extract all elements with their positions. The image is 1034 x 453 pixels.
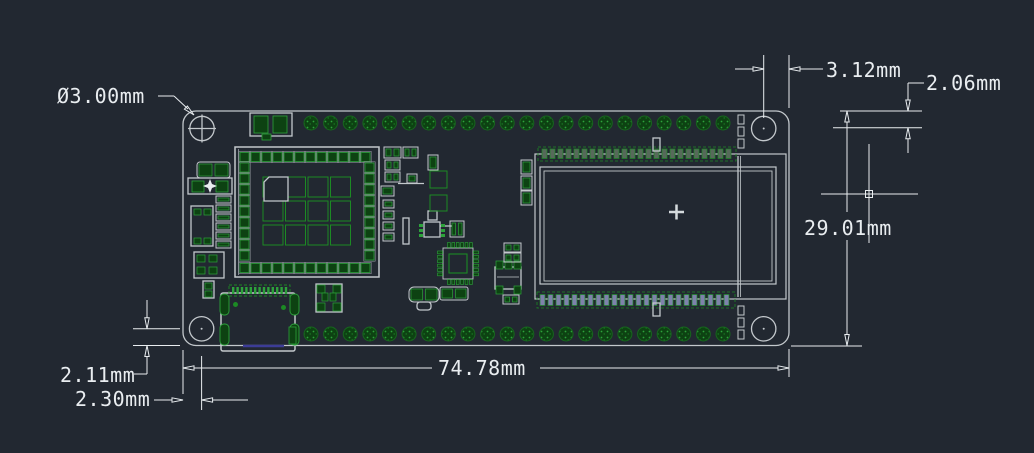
- mounting-hole-bottom-left: [189, 317, 213, 341]
- passive-pad: [459, 223, 463, 235]
- display-pad-top: [670, 149, 675, 159]
- mounting-hole-top-left: [188, 115, 216, 143]
- module-pad: [361, 153, 370, 162]
- usb-pin: [236, 287, 238, 294]
- passive-pad: [405, 149, 409, 156]
- passive-pad: [514, 245, 519, 250]
- module-pad: [284, 264, 293, 273]
- qfp-pin: [438, 264, 443, 267]
- display-module: [535, 147, 786, 308]
- qfp-pin: [474, 269, 479, 272]
- module-pad: [295, 264, 304, 273]
- crystal-footprint: [403, 218, 409, 244]
- display-pad-bottom: [692, 295, 697, 306]
- hole-side-marks: [738, 115, 744, 339]
- pin-pad: [618, 327, 632, 341]
- usb-pin: [276, 287, 278, 294]
- module-pad: [240, 229, 249, 238]
- usb-pin: [232, 287, 234, 294]
- ic-pin: [441, 234, 445, 237]
- display-pad-bottom: [588, 295, 593, 306]
- led-star-icon: [203, 179, 217, 193]
- qfp-pin: [470, 280, 473, 285]
- module-grid-pad: [308, 225, 328, 245]
- display-pad-top: [622, 149, 627, 159]
- dimensions-layer: Ø3.00mm 3.12mm 2.06mm 2: [57, 55, 1001, 411]
- display-pad-top: [630, 149, 635, 159]
- passive-pad: [412, 149, 416, 156]
- passive-pad: [394, 149, 399, 156]
- qfp-pin: [438, 260, 443, 263]
- small-component: [203, 281, 214, 298]
- pin-pad: [598, 327, 612, 341]
- passive-pad: [199, 164, 212, 176]
- module-pad: [240, 218, 249, 227]
- passive-pad: [394, 174, 398, 180]
- module-pad: [328, 153, 337, 162]
- module-pad: [365, 174, 374, 183]
- passive-pad: [506, 245, 511, 250]
- qfp-pin: [438, 273, 443, 276]
- module-pad: [273, 153, 282, 162]
- hole-side-mark: [738, 318, 744, 327]
- module-grid-pad: [308, 177, 328, 197]
- tactile-button-footprint: [495, 261, 521, 294]
- display-pad-bottom: [700, 295, 705, 306]
- module-pad: [240, 163, 249, 172]
- ic-pin: [419, 229, 423, 232]
- module-pad: [365, 251, 374, 260]
- module-pad: [350, 264, 359, 273]
- display-pad-bottom: [644, 295, 649, 306]
- qfp-pin: [465, 280, 468, 285]
- module-grid-pad: [286, 201, 306, 221]
- display-pad-top: [606, 149, 611, 159]
- pin-pad: [638, 327, 652, 341]
- passive-pad: [386, 149, 391, 156]
- power-ic-footprint: [194, 252, 224, 278]
- display-pad-bottom: [620, 295, 625, 306]
- display-pad-bottom: [660, 295, 665, 306]
- display-pad-top: [702, 149, 707, 159]
- pin-pad: [696, 116, 710, 130]
- usb-pin: [250, 287, 252, 294]
- display-pad-bottom: [724, 295, 729, 306]
- dimension-label-hole-diameter: Ø3.00mm: [57, 84, 145, 108]
- module-pad: [240, 240, 249, 249]
- qfp-pin: [448, 280, 451, 285]
- passive-pad: [426, 289, 438, 300]
- pin-pad: [618, 116, 632, 130]
- qfp-pin: [456, 243, 459, 248]
- module-pad: [365, 163, 374, 172]
- display-pad-bottom: [572, 295, 577, 306]
- dimension-label-top-edge-to-hole: 2.06mm: [926, 71, 1001, 95]
- display-pad-top: [558, 149, 563, 159]
- passive-pad: [218, 243, 229, 246]
- dimension-label-board-height: 29.01mm: [804, 216, 892, 240]
- display-pad-top: [582, 149, 587, 159]
- display-center-mark-icon: [669, 205, 684, 220]
- module-pad: [240, 153, 249, 162]
- display-pad-bottom: [708, 295, 713, 306]
- pin-pad: [657, 327, 671, 341]
- pin-pad: [579, 327, 593, 341]
- board-outline: [183, 111, 789, 346]
- display-pad-top: [710, 149, 715, 159]
- usb-pin: [272, 287, 274, 294]
- qfp-pin: [448, 243, 451, 248]
- pin-pad: [461, 327, 475, 341]
- pin-pad: [638, 116, 652, 130]
- module-pad: [365, 196, 374, 205]
- passive-pad: [452, 223, 456, 235]
- qfp-pin: [452, 280, 455, 285]
- display-pad-bottom: [636, 295, 641, 306]
- module-pad: [240, 196, 249, 205]
- display-pad-top: [614, 149, 619, 159]
- passive-pad: [218, 198, 229, 201]
- ic-pin: [419, 234, 423, 237]
- pin-pad: [363, 327, 377, 341]
- pin-pad: [363, 116, 377, 130]
- cad-viewport[interactable]: Ø3.00mm 3.12mm 2.06mm 2: [0, 0, 1034, 453]
- pin-pad: [343, 116, 357, 130]
- passive-pad: [513, 297, 518, 302]
- center-mark-icon: [188, 115, 216, 143]
- passive-pad: [383, 188, 392, 194]
- display-pad-top: [686, 149, 691, 159]
- pin-pad: [402, 327, 416, 341]
- module-pad: [365, 240, 374, 249]
- module-pad: [240, 264, 249, 273]
- pin-pad: [304, 116, 318, 130]
- usb-pin: [267, 287, 269, 294]
- usb-connector-footprint: [220, 285, 299, 351]
- pin-pad: [598, 116, 612, 130]
- display-pad-bottom: [556, 295, 561, 306]
- mounting-hole-bottom-right: [752, 317, 776, 341]
- pin-pad: [441, 327, 455, 341]
- display-pad-bottom: [684, 295, 689, 306]
- pin-pad: [382, 327, 396, 341]
- module-grid-pad: [263, 225, 283, 245]
- pin-pad: [539, 116, 553, 130]
- module-pad: [240, 174, 249, 183]
- pin-pad: [402, 116, 416, 130]
- passive-pad: [523, 193, 530, 203]
- pin-pad: [677, 116, 691, 130]
- mounting-hole-top-right: [752, 116, 776, 140]
- passive-pad: [394, 162, 398, 168]
- display-pad-top: [590, 149, 595, 159]
- module-pad: [328, 264, 337, 273]
- qfp-pin: [438, 255, 443, 258]
- rf-module-footprint: [235, 147, 379, 277]
- module-pad: [240, 185, 249, 194]
- pin-pad: [520, 327, 534, 341]
- passive-pad: [218, 234, 229, 237]
- regulator-ic-footprint: [191, 206, 213, 246]
- module-pad: [350, 153, 359, 162]
- pin-pad: [324, 116, 338, 130]
- qfp-pin: [474, 260, 479, 263]
- display-pad-bottom: [580, 295, 585, 306]
- hole-side-mark: [738, 139, 744, 148]
- button-tab: [417, 302, 431, 310]
- usb-pin: [263, 287, 265, 294]
- passive-pad: [430, 157, 436, 168]
- display-pad-bottom: [564, 295, 569, 306]
- qfp-pin: [465, 243, 468, 248]
- passive-pad: [218, 225, 229, 228]
- module-pad: [365, 229, 374, 238]
- usb-pin: [245, 287, 247, 294]
- display-pad-bottom: [716, 295, 721, 306]
- module-pad: [361, 264, 370, 273]
- passive-pad: [456, 289, 467, 298]
- display-pad-bottom: [604, 295, 609, 306]
- pin-pad: [696, 327, 710, 341]
- passive-pad: [411, 289, 423, 300]
- display-pad-bottom: [548, 295, 553, 306]
- display-pad-top: [550, 149, 555, 159]
- pin-pad: [324, 327, 338, 341]
- dimension-top-edge-to-hole: 2.06mm: [833, 71, 1001, 153]
- passive-pad: [385, 213, 392, 217]
- display-pad-bottom: [628, 295, 633, 306]
- pin-pad: [500, 327, 514, 341]
- pin-pad: [481, 116, 495, 130]
- pin-pad: [500, 116, 514, 130]
- qfp-pin: [470, 243, 473, 248]
- qfp-pin: [474, 273, 479, 276]
- led-footprint: [188, 178, 232, 194]
- dimension-hole-to-right-edge: 3.12mm: [735, 55, 901, 118]
- module-pad: [251, 153, 260, 162]
- module-pad: [251, 264, 260, 273]
- module-pad: [317, 153, 326, 162]
- module-pad: [262, 264, 271, 273]
- passive-pad: [215, 164, 228, 176]
- module-chip-outline: [264, 177, 288, 201]
- dimension-hole-diameter: Ø3.00mm: [57, 84, 194, 115]
- passive-pad: [506, 255, 511, 260]
- passive-pad: [218, 216, 229, 219]
- usb-pin: [254, 287, 256, 294]
- passive-pad: [385, 235, 392, 239]
- pin-pad: [716, 116, 730, 130]
- module-pad: [306, 153, 315, 162]
- qfp-pin: [474, 251, 479, 254]
- display-pad-top: [694, 149, 699, 159]
- module-pad: [240, 207, 249, 216]
- usb-pin: [241, 287, 243, 294]
- module-pad: [365, 218, 374, 227]
- display-pad-bottom: [668, 295, 673, 306]
- pcb-board: [183, 111, 789, 351]
- pin-pad: [461, 116, 475, 130]
- hole-side-mark: [738, 115, 744, 124]
- cad-drawing-canvas: Ø3.00mm 3.12mm 2.06mm 2: [0, 0, 1034, 453]
- passive-pad: [505, 297, 510, 302]
- module-grid-pad: [331, 201, 351, 221]
- module-pad: [317, 264, 326, 273]
- pin-pad: [657, 116, 671, 130]
- qfp-pin: [456, 280, 459, 285]
- display-pad-top: [542, 149, 547, 159]
- pin-pad: [539, 327, 553, 341]
- module-grid-pad: [331, 177, 351, 197]
- dimension-board-height: 29.01mm: [791, 111, 918, 346]
- display-pad-bottom: [676, 295, 681, 306]
- hole-side-mark: [738, 127, 744, 136]
- display-pad-top: [718, 149, 723, 159]
- hole-side-mark: [738, 306, 744, 315]
- usb-pin: [280, 287, 282, 294]
- passive-pad: [523, 178, 530, 188]
- display-pad-bottom: [612, 295, 617, 306]
- module-pad: [365, 185, 374, 194]
- display-pad-top: [574, 149, 579, 159]
- dimension-hole-to-bottom-edge: 2.11mm: [60, 300, 180, 387]
- hole-side-mark: [738, 330, 744, 339]
- pin-pad: [343, 327, 357, 341]
- ic-pin: [419, 224, 423, 227]
- dimension-board-width: 74.78mm: [183, 349, 789, 394]
- module-pad: [339, 264, 348, 273]
- dimension-label-board-width: 74.78mm: [438, 356, 526, 380]
- module-pad: [240, 251, 249, 260]
- ic-pin: [441, 224, 445, 227]
- display-pad-top: [678, 149, 683, 159]
- pin-pad: [559, 327, 573, 341]
- dimension-label-hole-to-bottom-edge: 2.11mm: [60, 363, 135, 387]
- pin-pad: [481, 327, 495, 341]
- module-grid-pad: [331, 225, 351, 245]
- module-pad: [284, 153, 293, 162]
- qfp-pin: [461, 243, 464, 248]
- qfp-pin: [474, 264, 479, 267]
- module-grid-pad: [308, 201, 328, 221]
- passive-pad: [385, 224, 392, 228]
- module-pad: [306, 264, 315, 273]
- module-pad: [295, 153, 304, 162]
- pin-pad: [579, 116, 593, 130]
- passive-pad: [385, 202, 392, 206]
- passive-pad: [409, 176, 415, 181]
- antenna-feed-component: [250, 113, 292, 140]
- dimension-label-hole-to-right-edge: 3.12mm: [826, 58, 901, 82]
- tactile-button-footprint: [316, 284, 342, 312]
- display-pad-top: [638, 149, 643, 159]
- module-pad: [339, 153, 348, 162]
- pin-pad: [422, 116, 436, 130]
- display-pad-top: [598, 149, 603, 159]
- module-grid-pad: [286, 225, 306, 245]
- qfp-pin: [452, 243, 455, 248]
- qfp-pin: [438, 251, 443, 254]
- edge-pad: [289, 327, 296, 344]
- pin-pad: [304, 327, 318, 341]
- passive-pad: [218, 207, 229, 210]
- silk-square: [430, 195, 447, 211]
- pin-pad: [441, 116, 455, 130]
- pin-pad: [520, 116, 534, 130]
- module-grid-pad: [263, 201, 283, 221]
- pin-pad: [559, 116, 573, 130]
- qfp-pin: [438, 269, 443, 272]
- passive-pad: [514, 255, 519, 260]
- silk-square: [430, 171, 447, 188]
- display-pad-top: [566, 149, 571, 159]
- pin-pad: [422, 327, 436, 341]
- display-pad-bottom: [596, 295, 601, 306]
- dimension-label-left-edge-to-hole: 2.30mm: [75, 387, 150, 411]
- module-pad: [262, 153, 271, 162]
- module-pad: [273, 264, 282, 273]
- display-pad-top: [662, 149, 667, 159]
- pin-pad: [677, 327, 691, 341]
- display-pad-top: [646, 149, 651, 159]
- passive-pad: [523, 162, 530, 172]
- passive-pad: [387, 162, 391, 168]
- pin-pad: [716, 327, 730, 341]
- ic-pin: [441, 229, 445, 232]
- qfp-pin: [461, 280, 464, 285]
- usb-pin: [258, 287, 260, 294]
- display-pad-bottom: [540, 295, 545, 306]
- pin-pad: [382, 116, 396, 130]
- passive-pad: [387, 174, 391, 180]
- usb-pin: [285, 287, 287, 294]
- display-pad-top: [726, 149, 731, 159]
- passive-pad: [442, 289, 453, 298]
- qfp-pin: [474, 255, 479, 258]
- usb-serial-qfp-footprint: [438, 243, 479, 285]
- module-pad: [365, 207, 374, 216]
